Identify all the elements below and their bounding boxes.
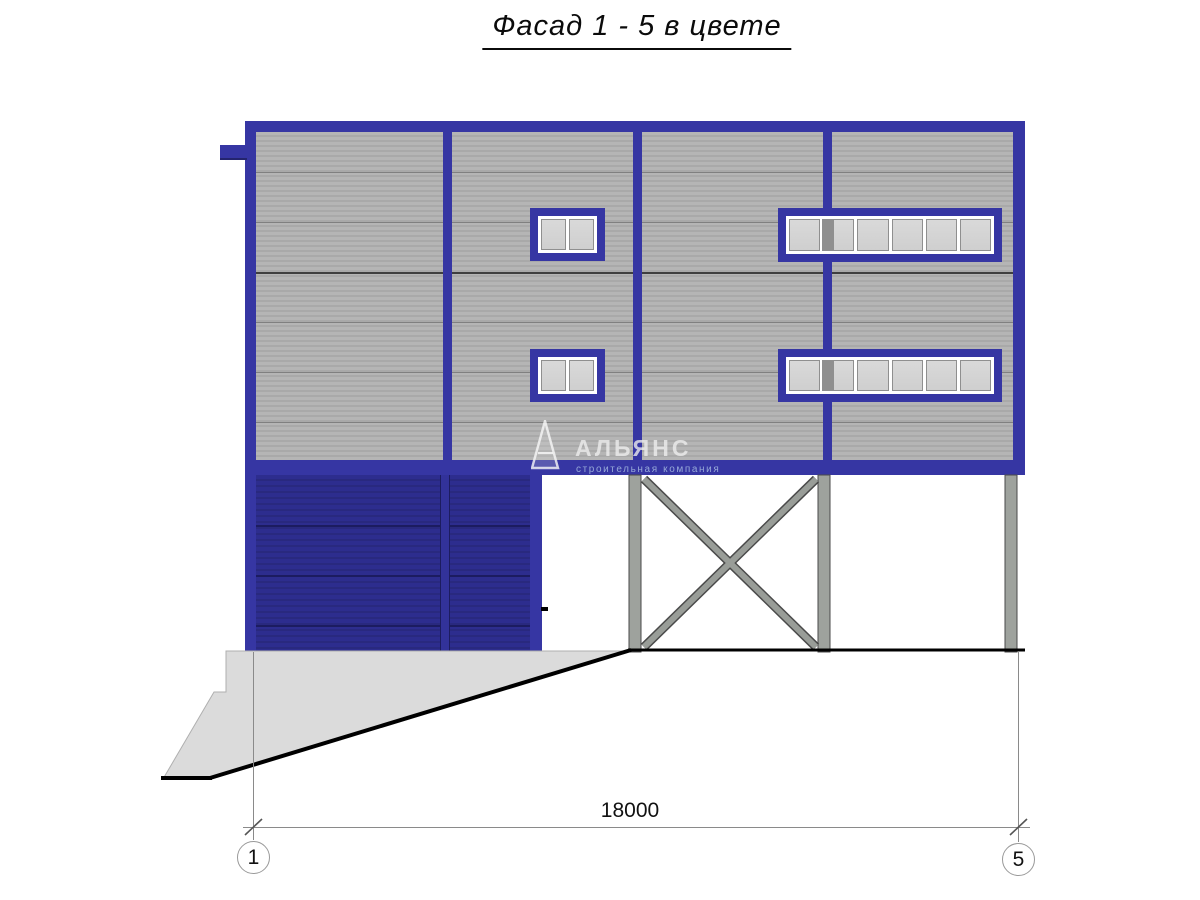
column <box>629 475 641 652</box>
grid-axis-bubble-5: 5 <box>1002 843 1035 876</box>
structure-layer <box>0 0 1200 900</box>
dimension-value: 18000 <box>540 799 720 823</box>
column <box>818 475 830 652</box>
grid-axis-bubble-1: 1 <box>237 841 270 874</box>
x-bracing <box>644 479 816 647</box>
steel-columns <box>629 475 1017 652</box>
column <box>1005 475 1017 652</box>
